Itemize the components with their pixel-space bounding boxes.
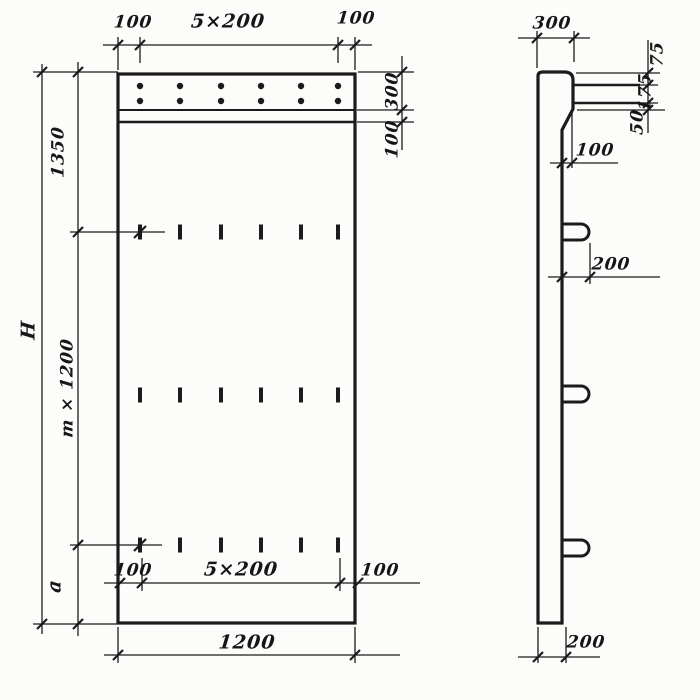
slot-mark-grid [140,225,338,553]
dim-front-strip-100: 100 [385,119,402,159]
engineering-drawing-panel: 100 5×200 100 300 100 1350 H m × 1200 a … [0,0,700,700]
dim-front-bottom-span: 5×200 [203,561,279,580]
dim-front-left-a: a [46,578,65,593]
dim-front-bottom-left: 100 [113,563,153,580]
dim-front-module: m × 1200 [60,337,77,438]
dim-side-step-100: 100 [575,143,615,160]
dim-side-175: 175 [638,72,655,112]
dim-front-top-left: 100 [113,15,153,32]
anchor-dot-grid [137,83,341,104]
dim-front-left-1350: 1350 [51,125,68,178]
drawing-linework [0,0,700,700]
dim-side-loop-200: 200 [591,257,631,274]
dim-side-50: 50 [630,108,647,135]
dim-side-top-300: 300 [532,16,572,33]
side-top-dimension [518,31,590,68]
dim-front-top-right: 100 [336,11,376,28]
front-view-panel-outline [118,74,355,623]
dim-side-thickness-200: 200 [566,635,606,652]
dim-front-overall-1200: 1200 [218,634,277,653]
dim-side-75: 75 [650,40,667,67]
dim-front-height-H: H [20,320,39,341]
dim-front-top-span: 5×200 [190,13,266,32]
front-top-dimension [103,37,372,70]
dim-front-bottom-right: 100 [360,563,400,580]
dim-front-strip-300: 300 [385,71,402,111]
